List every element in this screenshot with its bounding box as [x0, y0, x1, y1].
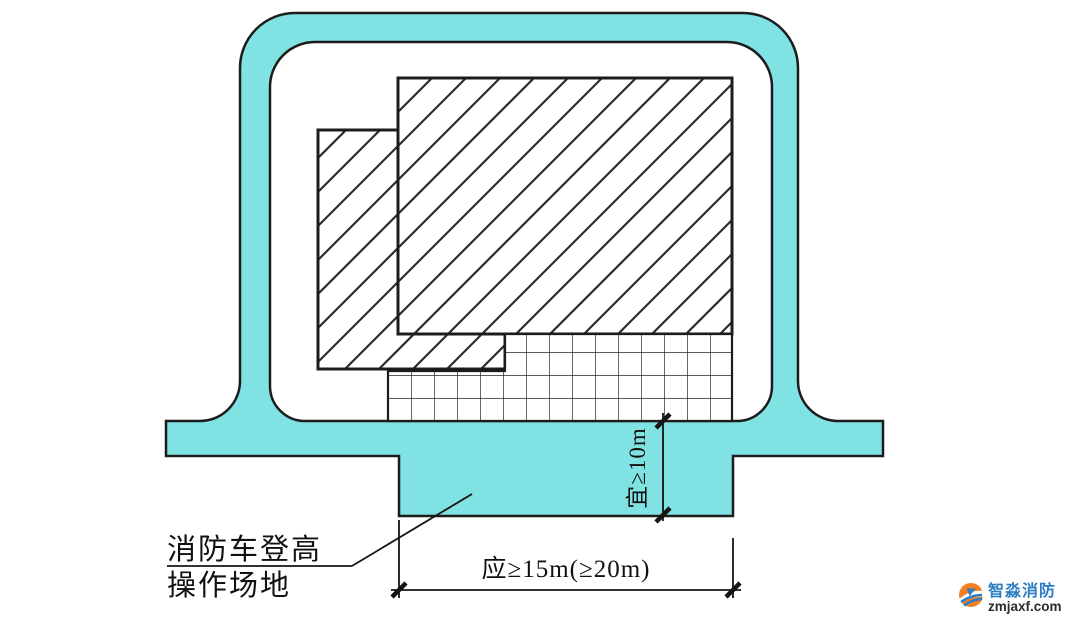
- site-label-line2: 操作场地: [167, 569, 291, 602]
- brand-name: 智淼消防: [988, 581, 1056, 600]
- diagram-canvas: 宜≥10m 应≥15m(≥20m) 消防车登高 操作场地: [0, 0, 1080, 617]
- fire-truck-access-diagram: 宜≥10m 应≥15m(≥20m) 消防车登高 操作场地: [0, 0, 1080, 617]
- site-label-line1: 消防车登高: [167, 533, 322, 566]
- vertical-dimension-label: 宜≥10m: [625, 427, 650, 509]
- horizontal-dimension-label: 应≥15m(≥20m): [482, 555, 651, 583]
- brand-domain: zmjaxf.com: [988, 599, 1062, 614]
- high-rise-building: [398, 78, 732, 334]
- brand-logo-icon: [959, 583, 983, 607]
- watermark: 智淼消防 zmjaxf.com: [959, 581, 1062, 614]
